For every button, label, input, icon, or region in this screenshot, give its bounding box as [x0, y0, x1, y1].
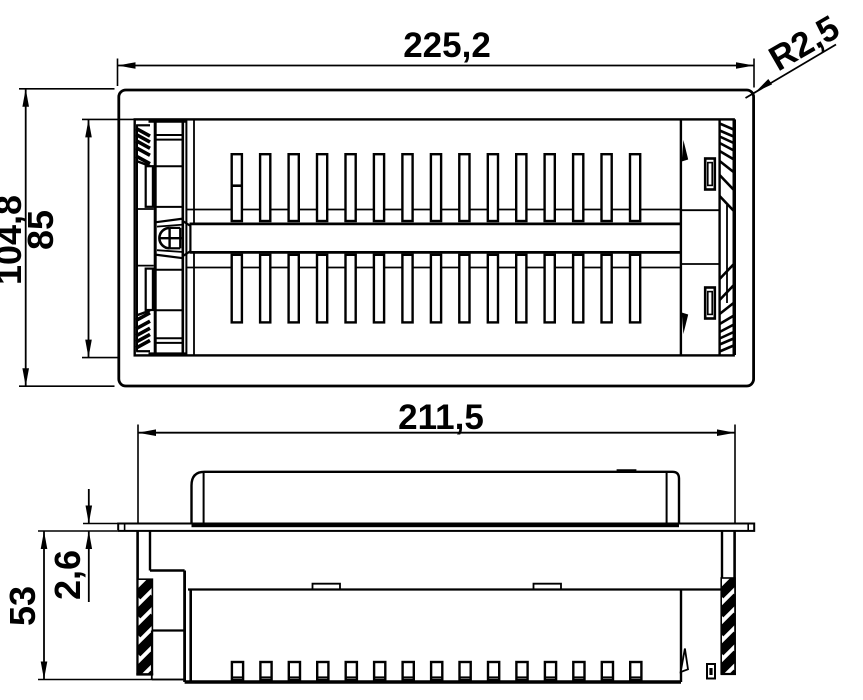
svg-text:211,5: 211,5	[398, 398, 484, 437]
svg-text:53: 53	[2, 586, 43, 626]
svg-text:2,6: 2,6	[47, 550, 88, 600]
svg-text:85: 85	[20, 210, 61, 250]
svg-text:225,2: 225,2	[403, 26, 491, 65]
